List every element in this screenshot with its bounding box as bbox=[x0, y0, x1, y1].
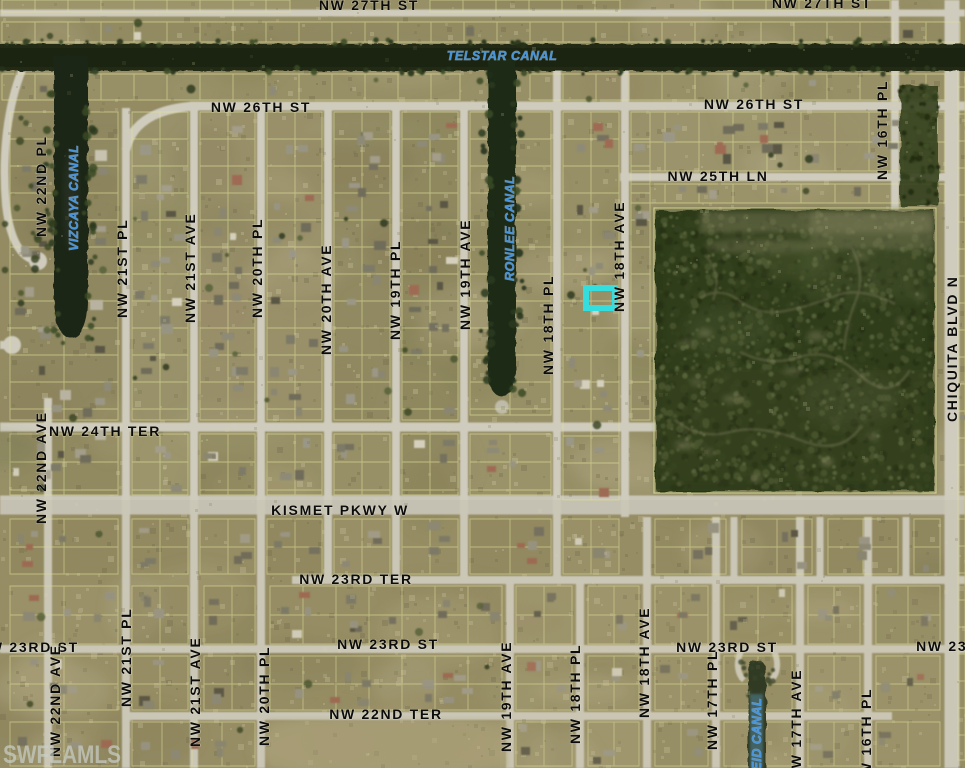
svg-text:NW 19TH AVE: NW 19TH AVE bbox=[498, 641, 514, 752]
svg-text:NW 26TH ST: NW 26TH ST bbox=[704, 96, 804, 112]
svg-text:NW 19TH AVE: NW 19TH AVE bbox=[457, 219, 473, 330]
svg-text:RONLEE CANAL: RONLEE CANAL bbox=[503, 176, 517, 281]
svg-text:TELSTAR CANAL: TELSTAR CANAL bbox=[447, 49, 557, 63]
svg-text:NW 21ST AVE: NW 21ST AVE bbox=[187, 637, 203, 748]
svg-text:NW 17TH PL: NW 17TH PL bbox=[704, 650, 720, 750]
svg-text:NW 17TH AVE: NW 17TH AVE bbox=[788, 669, 804, 768]
svg-text:NW 19TH PL: NW 19TH PL bbox=[387, 240, 403, 340]
svg-text:NW 22ND TER: NW 22ND TER bbox=[329, 706, 443, 722]
svg-text:KISMET PKWY W: KISMET PKWY W bbox=[271, 502, 409, 518]
svg-text:NW 26TH ST: NW 26TH ST bbox=[211, 99, 311, 115]
svg-text:NW 23RD ST: NW 23RD ST bbox=[676, 639, 778, 655]
svg-text:NW 18TH PL: NW 18TH PL bbox=[540, 275, 556, 375]
svg-text:NW 18TH AVE: NW 18TH AVE bbox=[636, 607, 652, 718]
svg-text:NW 23RD ST: NW 23RD ST bbox=[0, 639, 79, 655]
svg-text:NW 22ND PL: NW 22ND PL bbox=[33, 135, 49, 237]
svg-text:NW 20TH PL: NW 20TH PL bbox=[249, 218, 265, 318]
svg-text:NW 18TH AVE: NW 18TH AVE bbox=[611, 201, 627, 312]
svg-text:NW 21ST PL: NW 21ST PL bbox=[114, 219, 130, 318]
svg-text:NW 16TH PL: NW 16TH PL bbox=[874, 80, 890, 180]
svg-text:NW 23RD ST: NW 23RD ST bbox=[337, 636, 439, 652]
svg-text:NW 24TH TER: NW 24TH TER bbox=[49, 423, 161, 439]
svg-text:SWFLAMLS: SWFLAMLS bbox=[3, 741, 121, 768]
svg-text:CHIQUITA BLVD N: CHIQUITA BLVD N bbox=[944, 275, 960, 422]
svg-text:NW 27TH ST: NW 27TH ST bbox=[319, 0, 419, 13]
svg-text:REID CANAL: REID CANAL bbox=[750, 698, 764, 768]
svg-text:NW 23RD ST: NW 23RD ST bbox=[916, 638, 965, 654]
svg-text:NW 27TH ST: NW 27TH ST bbox=[772, 0, 872, 11]
svg-text:VIZCAYA CANAL: VIZCAYA CANAL bbox=[67, 145, 81, 251]
svg-text:NW 21ST PL: NW 21ST PL bbox=[118, 608, 134, 707]
svg-text:NW 20TH AVE: NW 20TH AVE bbox=[318, 244, 334, 355]
svg-text:NW 18TH PL: NW 18TH PL bbox=[567, 644, 583, 744]
svg-text:NW 20TH PL: NW 20TH PL bbox=[256, 646, 272, 746]
svg-text:NW 21ST AVE: NW 21ST AVE bbox=[182, 213, 198, 324]
svg-text:NW 25TH LN: NW 25TH LN bbox=[668, 168, 769, 184]
svg-text:NW 22ND AVE: NW 22ND AVE bbox=[33, 411, 49, 524]
svg-text:NW 23RD TER: NW 23RD TER bbox=[299, 571, 413, 587]
svg-text:NW 16TH PL: NW 16TH PL bbox=[858, 688, 874, 768]
